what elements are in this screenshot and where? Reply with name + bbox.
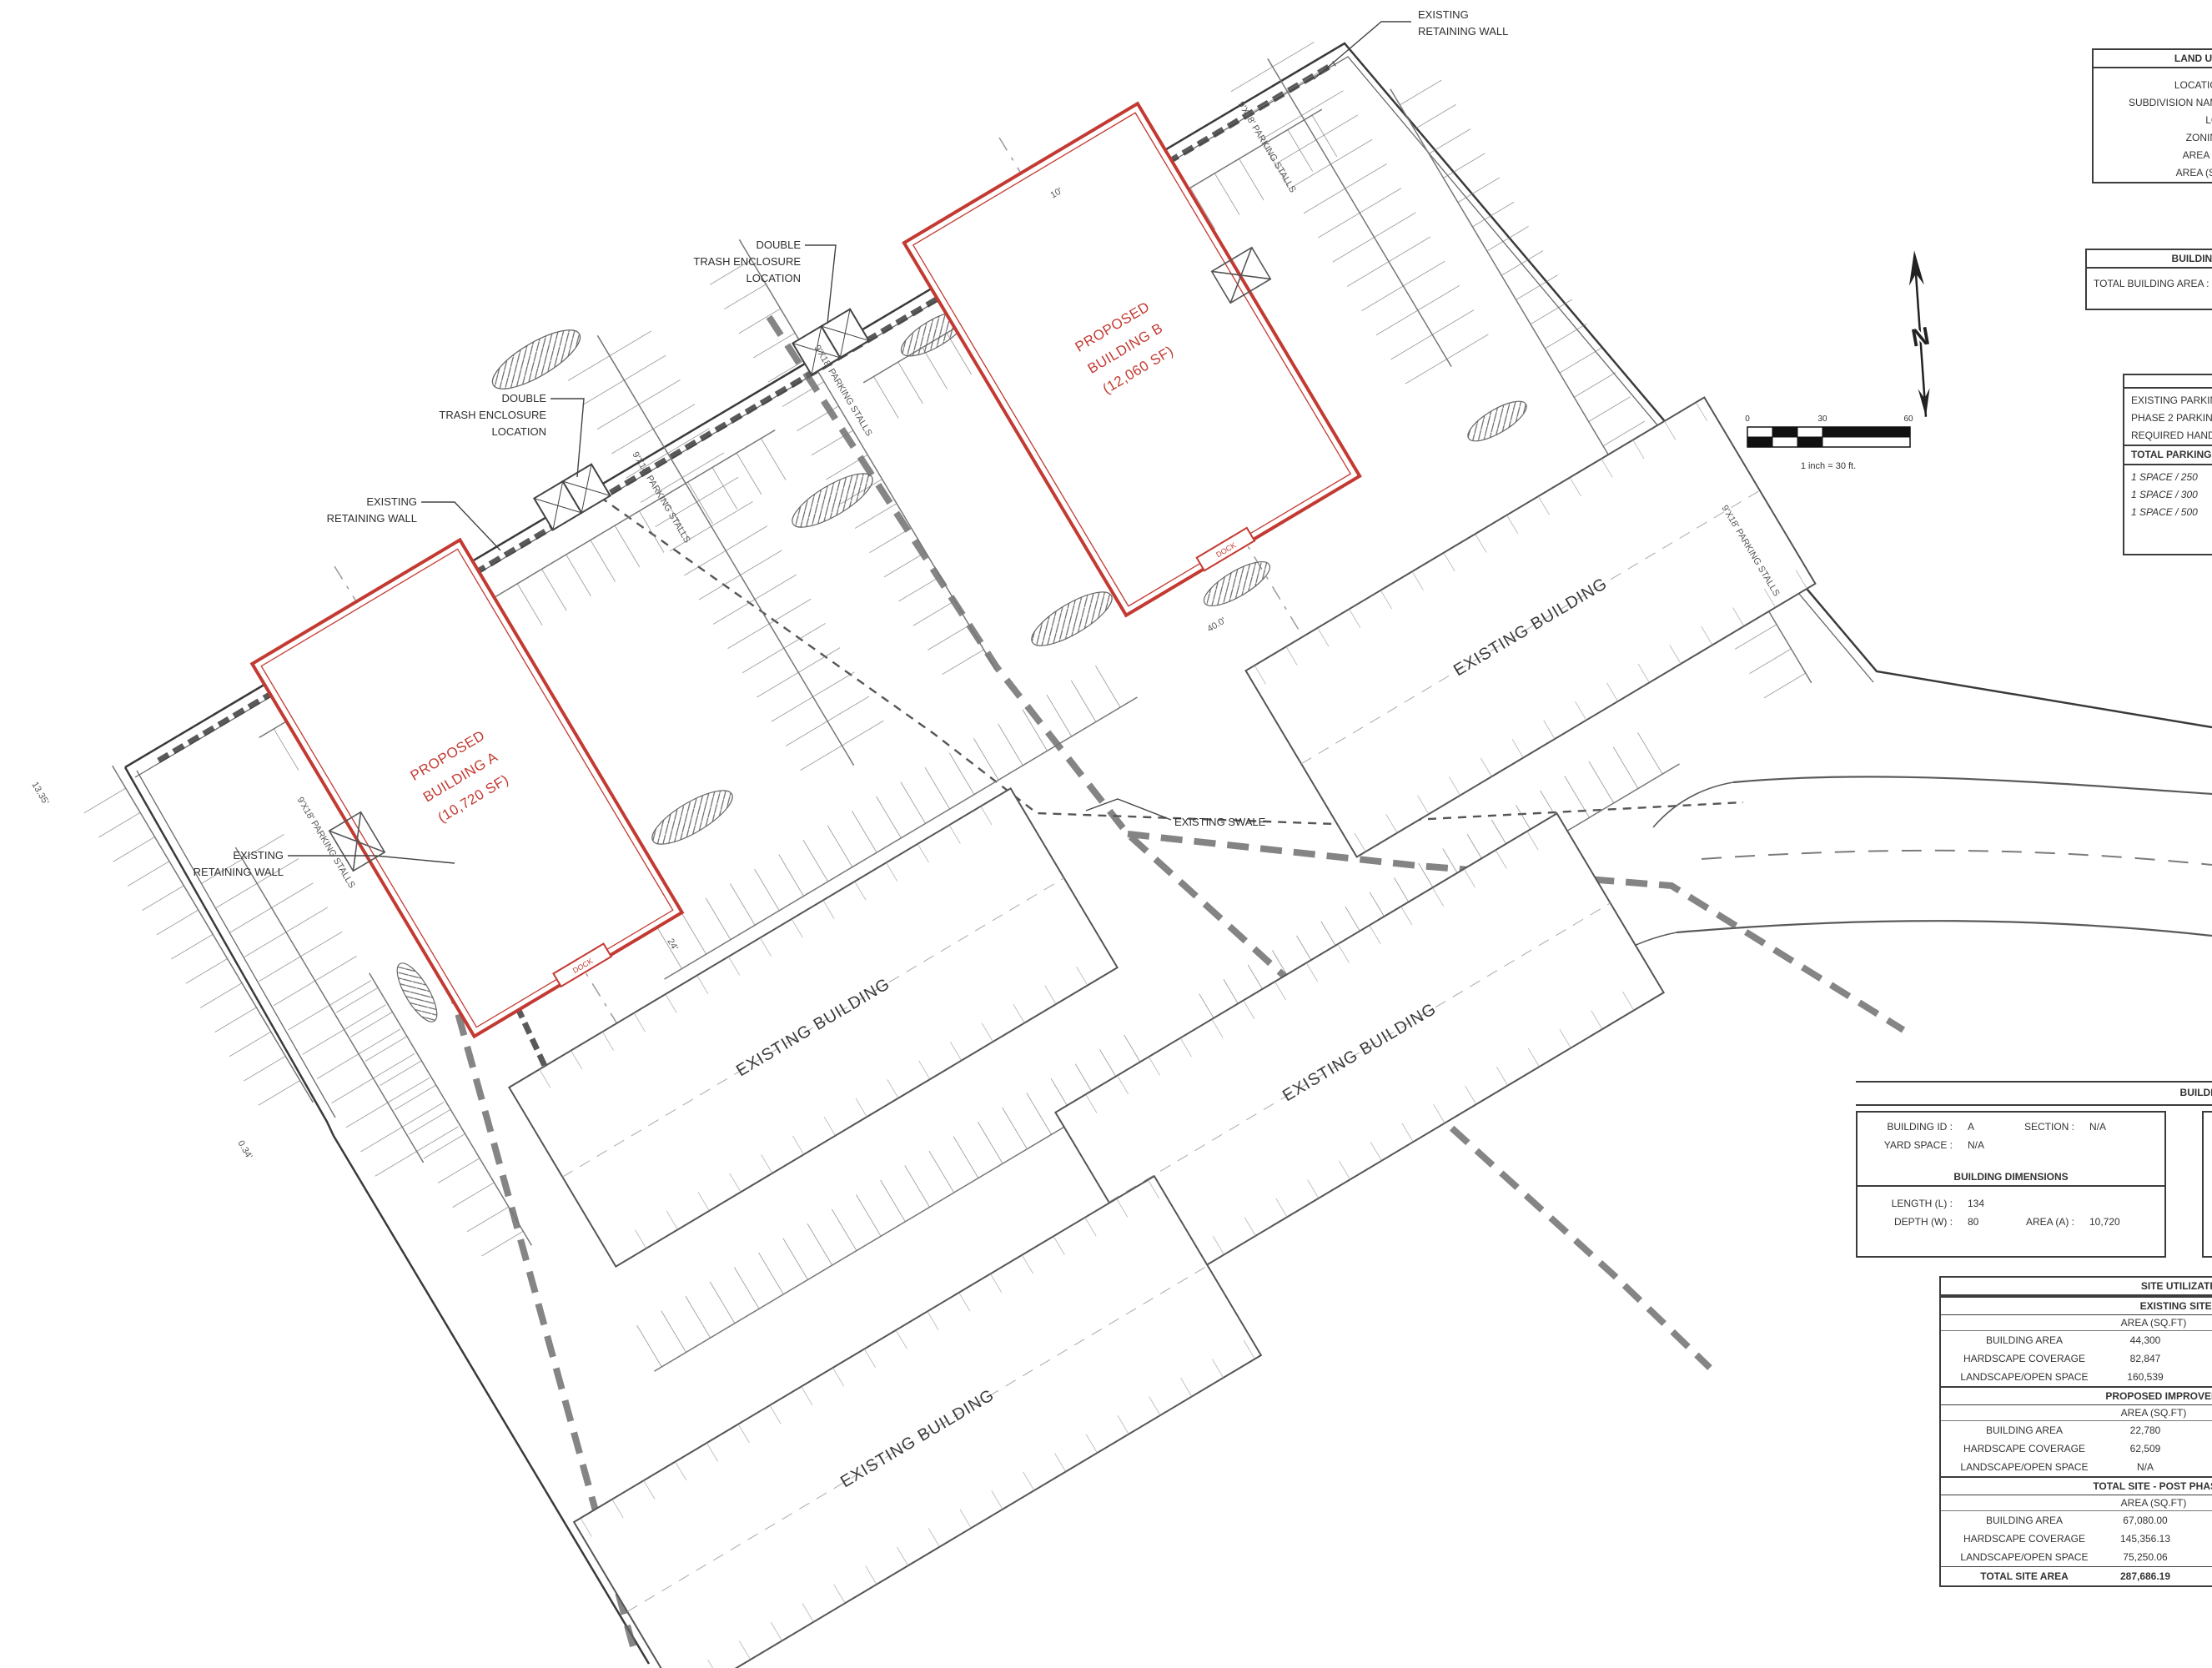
row-value: N/A (2087, 1458, 2204, 1476)
land-use-row: ZONING : (2094, 129, 2212, 147)
area-col-header: AREA (SQ.FT) (2095, 1495, 2212, 1510)
scale-caption: 1 inch = 30 ft. (1801, 461, 1856, 471)
row-value: 44,300 (2087, 1331, 2204, 1349)
row-label: TOTAL SITE AREA (1941, 1567, 2108, 1585)
site-utilization-table: SITE UTILIZATION TABLE EXISTING SITE (PH… (1939, 1276, 2212, 1587)
site-util-row: LANDSCAPE/OPEN SPACEN/A (1941, 1458, 2212, 1476)
area-label: AREA (A) : (1999, 1216, 2074, 1228)
swale-label: EXISTING SWALE (1174, 816, 1266, 828)
land-use-table: LAND USE DATA LOCATION : SUBDIVISION NAM… (2092, 48, 2212, 183)
land-use-row: LOT : (2094, 112, 2212, 129)
retaining-wall-bl-label-2: RETAINING WALL (194, 866, 284, 878)
parking-ratio-row: 1 SPACE / 250 (2131, 469, 2212, 486)
building-data-header: BUILDING DATA (1856, 1081, 2212, 1106)
area-col-header: AREA (SQ.FT) (2095, 1315, 2212, 1330)
row-label: BUILDING AREA (1941, 1421, 2108, 1439)
site-plan-svg: EXISTING BUILDING EXISTING BUILDING EXIS… (0, 0, 2212, 1668)
section-title-existing: EXISTING SITE (PHASE 1) (1941, 1296, 2212, 1315)
scale-tick-60: 60 (1903, 414, 1913, 424)
row-label: BUILDING AREA (1941, 1511, 2108, 1530)
section-title-total: TOTAL SITE - POST PHASE 2 DEVELOPMENT (1941, 1476, 2212, 1495)
site-utilization-header: SITE UTILIZATION TABLE (1941, 1278, 2212, 1296)
land-use-row: AREA SF : (2094, 147, 2212, 164)
land-use-header: LAND USE DATA (2094, 50, 2212, 68)
area-col-header: AREA (SQ.FT) (2095, 1405, 2212, 1420)
road (1589, 776, 2212, 974)
parking-row: PHASE 2 PARKING (2131, 409, 2212, 427)
building-areas-header: BUILDING AREAS (2087, 250, 2212, 269)
parking-ratio-row: 1 SPACE / 500 (2131, 504, 2212, 521)
depth-label: DEPTH (W) : (1861, 1216, 1953, 1228)
site-util-row: BUILDING AREA22,780 (1941, 1421, 2212, 1439)
site-util-row: LANDSCAPE/OPEN SPACE160,539 (1941, 1368, 2212, 1386)
land-use-row: SUBDIVISION NAME : (2094, 94, 2212, 112)
dim-40: 40.0' (1205, 615, 1227, 634)
yard-space-label: YARD SPACE : (1861, 1139, 1953, 1151)
row-label: HARDSCAPE COVERAGE (1941, 1349, 2108, 1368)
trash-2-label-2: TRASH ENCLOSURE (439, 409, 546, 421)
site-plan-page: { "colors": {"red": "#c33a32", "ink": "#… (0, 0, 2212, 1668)
trash-2-label-1: DOUBLE (502, 392, 547, 404)
retaining-wall-bl-label-1: EXISTING (233, 849, 284, 862)
section-label: SECTION : (1999, 1121, 2074, 1133)
site-util-row: HARDSCAPE COVERAGE145,356.13 (1941, 1530, 2212, 1548)
row-label: LANDSCAPE/OPEN SPACE (1941, 1458, 2108, 1476)
depth-value: 80 (1968, 1216, 1978, 1228)
north-arrow: N (1904, 249, 1937, 417)
row-value: 22,780 (2087, 1421, 2204, 1439)
building-areas-table: BUILDING AREAS TOTAL BUILDING AREA : (2085, 249, 2212, 310)
parking-total-row: TOTAL PARKING (2124, 445, 2212, 465)
retaining-wall-tr-label-1: EXISTING (1418, 8, 1469, 21)
existing-building-bottom: EXISTING BUILDING (574, 1176, 1261, 1668)
row-label: LANDSCAPE/OPEN SPACE (1941, 1548, 2108, 1566)
building-data-box-a: BUILDING ID : A SECTION : N/A YARD SPACE… (1856, 1111, 2166, 1258)
row-value: 62,509 (2087, 1439, 2204, 1458)
row-value: 145,356.13 (2087, 1530, 2204, 1548)
trash-1-label-2: TRASH ENCLOSURE (693, 255, 801, 268)
parking-ratio-row: 1 SPACE / 300 (2131, 486, 2212, 504)
building-areas-row: TOTAL BUILDING AREA : (2087, 269, 2212, 293)
row-value: 287,686.19 (2087, 1567, 2204, 1585)
scale-tick-30: 30 (1817, 414, 1827, 424)
site-util-row: HARDSCAPE COVERAGE62,509 (1941, 1439, 2212, 1458)
parking-row: REQUIRED HANDICAP (2131, 427, 2212, 445)
row-label: HARDSCAPE COVERAGE (1941, 1530, 2108, 1548)
scale-bar: 0 30 60 1 inch = 30 ft. (1745, 414, 1913, 471)
retaining-wall-tr-label-2: RETAINING WALL (1418, 25, 1508, 38)
yard-space-value: N/A (1968, 1139, 1984, 1151)
building-dims-header: BUILDING DIMENSIONS (1858, 1171, 2164, 1187)
length-value: 134 (1968, 1198, 1984, 1209)
row-label: LANDSCAPE/OPEN SPACE (1941, 1368, 2108, 1386)
building-id-value: A (1968, 1121, 1974, 1133)
row-value: 67,080.00 (2087, 1511, 2204, 1530)
row-value: 160,539 (2087, 1368, 2204, 1386)
building-data-box-b (2202, 1111, 2212, 1258)
row-label: BUILDING AREA (1941, 1331, 2108, 1349)
parking-header: PARKING DATA (2124, 375, 2212, 389)
building-id-label: BUILDING ID : (1861, 1121, 1953, 1133)
scale-tick-0: 0 (1745, 414, 1750, 424)
trash-enclosure-2 (534, 465, 610, 530)
row-value: 75,250.06 (2087, 1548, 2204, 1566)
retaining-wall-left-label-2: RETAINING WALL (327, 512, 417, 525)
trash-2-label-3: LOCATION (492, 425, 547, 438)
section-value: N/A (2089, 1121, 2106, 1133)
dim-034: 0.34' (235, 1139, 254, 1161)
length-label: LENGTH (L) : (1861, 1198, 1953, 1209)
site-util-total-row: TOTAL SITE AREA287,686.19 (1941, 1566, 2212, 1585)
dim-1335: 13.35' (29, 781, 50, 807)
trash-1-label-1: DOUBLE (757, 239, 802, 251)
land-use-row: LOCATION : (2094, 77, 2212, 94)
area-value: 10,720 (2089, 1216, 2120, 1228)
retaining-wall-left-label-1: EXISTING (366, 495, 417, 508)
land-use-row: AREA (SF) : (2094, 164, 2212, 182)
north-label: N (1909, 322, 1932, 352)
site-util-row: HARDSCAPE COVERAGE82,847 (1941, 1349, 2212, 1368)
site-util-row: BUILDING AREA67,080.00 (1941, 1511, 2212, 1530)
site-util-row: LANDSCAPE/OPEN SPACE75,250.06 (1941, 1548, 2212, 1566)
parking-row: EXISTING PARKING (2131, 392, 2212, 409)
row-label: HARDSCAPE COVERAGE (1941, 1439, 2108, 1458)
row-value: 82,847 (2087, 1349, 2204, 1368)
parking-table: PARKING DATA EXISTING PARKING PHASE 2 PA… (2123, 374, 2212, 555)
section-title-proposed: PROPOSED IMPROVEMENTS (PHASE 2) (1941, 1386, 2212, 1405)
site-util-row: BUILDING AREA44,300 (1941, 1331, 2212, 1349)
trash-1-label-3: LOCATION (747, 272, 802, 284)
